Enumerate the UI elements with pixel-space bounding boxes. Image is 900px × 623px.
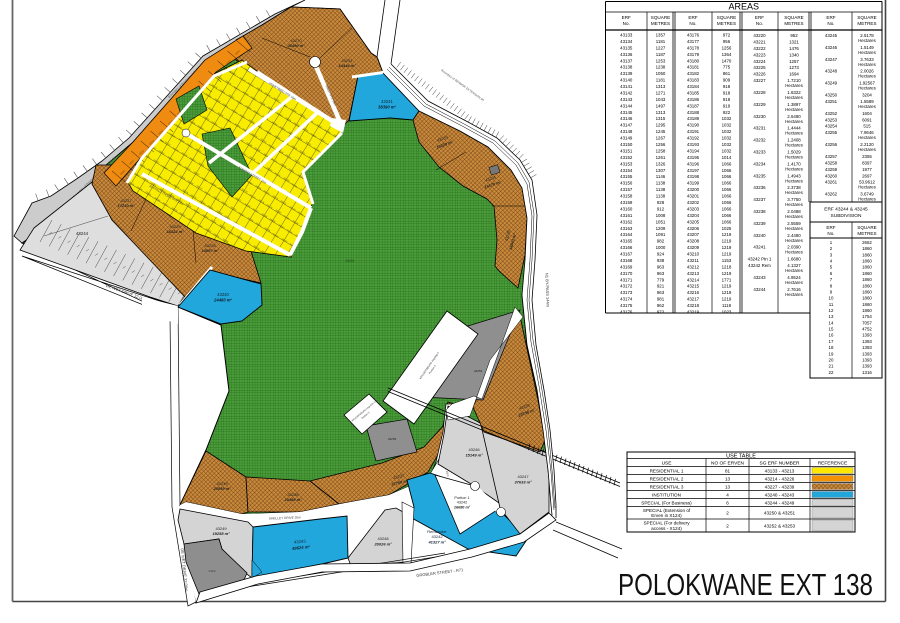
svg-text:SQUARE: SQUARE xyxy=(857,15,876,20)
svg-text:16322 m²: 16322 m² xyxy=(166,229,184,234)
svg-text:1257: 1257 xyxy=(789,59,799,64)
svg-text:1066: 1066 xyxy=(722,200,732,205)
svg-text:1066: 1066 xyxy=(722,213,732,218)
svg-text:43153: 43153 xyxy=(620,161,633,166)
svg-text:43166: 43166 xyxy=(620,245,633,250)
svg-text:43182: 43182 xyxy=(687,71,700,76)
svg-text:1066: 1066 xyxy=(722,206,732,211)
svg-text:1754: 1754 xyxy=(862,314,872,319)
svg-text:43240: 43240 xyxy=(217,292,229,297)
svg-text:Hectares: Hectares xyxy=(858,147,876,152)
svg-text:43239: 43239 xyxy=(753,221,766,226)
svg-text:43211: 43211 xyxy=(687,258,699,263)
svg-text:Hectares: Hectares xyxy=(785,250,803,255)
svg-text:43193: 43193 xyxy=(687,142,700,147)
svg-text:1066: 1066 xyxy=(722,187,732,192)
svg-text:43133: 43133 xyxy=(620,33,633,38)
svg-text:Hectares: Hectares xyxy=(858,86,876,91)
svg-text:N1 BY-PASS 144m: N1 BY-PASS 144m xyxy=(544,273,550,308)
svg-text:1261: 1261 xyxy=(656,155,666,160)
svg-text:43174: 43174 xyxy=(149,71,156,76)
svg-text:43139: 43139 xyxy=(176,26,183,31)
svg-text:43163: 43163 xyxy=(620,226,633,231)
svg-text:918: 918 xyxy=(723,97,731,102)
svg-text:REFERENCE: REFERENCE xyxy=(818,461,848,467)
svg-text:43228: 43228 xyxy=(753,90,766,95)
svg-text:43196: 43196 xyxy=(687,161,700,166)
svg-text:43203: 43203 xyxy=(687,206,700,211)
svg-text:1.6680: 1.6680 xyxy=(787,257,801,262)
svg-text:43240: 43240 xyxy=(753,233,766,238)
svg-text:1219: 1219 xyxy=(722,245,732,250)
svg-text:1860: 1860 xyxy=(862,265,872,270)
svg-text:43260: 43260 xyxy=(825,173,838,178)
svg-text:972: 972 xyxy=(723,33,731,38)
svg-text:43244: 43244 xyxy=(76,231,89,236)
svg-text:1219: 1219 xyxy=(722,252,732,257)
svg-text:43192: 43192 xyxy=(687,136,700,141)
svg-text:1771: 1771 xyxy=(722,277,732,282)
svg-text:1227: 1227 xyxy=(656,45,666,50)
svg-text:43226: 43226 xyxy=(753,72,766,77)
svg-text:19: 19 xyxy=(829,351,834,356)
svg-text:43233: 43233 xyxy=(753,150,766,155)
svg-text:20: 20 xyxy=(829,358,834,363)
svg-text:963: 963 xyxy=(657,271,665,276)
svg-text:43198: 43198 xyxy=(141,103,148,108)
svg-text:963: 963 xyxy=(657,264,665,269)
svg-text:43209: 43209 xyxy=(121,115,128,120)
svg-text:43138: 43138 xyxy=(620,65,633,70)
svg-text:43154: 43154 xyxy=(620,168,633,173)
svg-text:43141: 43141 xyxy=(207,33,214,38)
svg-text:43169: 43169 xyxy=(620,264,633,269)
svg-text:1860: 1860 xyxy=(862,308,872,313)
svg-text:43237: 43237 xyxy=(753,197,766,202)
svg-text:43220: 43220 xyxy=(753,33,766,38)
svg-text:43212: 43212 xyxy=(687,264,700,269)
svg-text:43141: 43141 xyxy=(620,84,633,89)
svg-text:43152: 43152 xyxy=(188,45,195,50)
svg-text:43242 Rem: 43242 Rem xyxy=(748,263,771,268)
svg-text:2697: 2697 xyxy=(862,173,872,178)
svg-text:43184: 43184 xyxy=(687,84,700,89)
svg-text:43242: 43242 xyxy=(431,534,443,539)
svg-text:43181: 43181 xyxy=(687,65,700,70)
svg-text:43176: 43176 xyxy=(620,310,633,315)
svg-text:918: 918 xyxy=(723,84,731,89)
svg-text:43177: 43177 xyxy=(687,39,700,44)
svg-text:43149: 43149 xyxy=(105,142,112,147)
svg-text:METRES: METRES xyxy=(857,231,876,236)
svg-text:SUBDIVISION: SUBDIVISION xyxy=(831,213,862,219)
svg-text:43241: 43241 xyxy=(381,99,393,104)
svg-text:43218: 43218 xyxy=(687,303,700,308)
svg-text:43173: 43173 xyxy=(171,72,178,77)
svg-text:43252 & 43253: 43252 & 43253 xyxy=(764,523,796,528)
svg-text:1273: 1273 xyxy=(789,65,799,70)
svg-text:ERF: ERF xyxy=(755,15,764,20)
svg-text:4: 4 xyxy=(726,492,729,497)
svg-text:43164: 43164 xyxy=(620,232,633,237)
svg-text:43250 & 43251: 43250 & 43251 xyxy=(764,511,796,516)
svg-text:1271: 1271 xyxy=(656,91,666,96)
svg-text:ERF: ERF xyxy=(826,15,835,20)
svg-text:43244: 43244 xyxy=(753,287,766,292)
svg-text:43156: 43156 xyxy=(620,181,633,186)
svg-text:43213: 43213 xyxy=(182,17,189,22)
svg-text:1032: 1032 xyxy=(722,123,732,128)
svg-text:1315: 1315 xyxy=(656,116,666,121)
svg-text:43224: 43224 xyxy=(753,59,766,64)
svg-text:43173: 43173 xyxy=(620,290,633,295)
svg-text:Hectares: Hectares xyxy=(785,107,803,112)
svg-text:43248: 43248 xyxy=(825,69,838,74)
svg-text:Hectares: Hectares xyxy=(785,155,803,160)
svg-text:RESIDENTIAL 2: RESIDENTIAL 2 xyxy=(650,476,684,481)
svg-text:1860: 1860 xyxy=(862,259,872,264)
svg-text:1977: 1977 xyxy=(862,167,872,172)
svg-text:43246: 43246 xyxy=(468,447,480,452)
svg-text:1219: 1219 xyxy=(722,239,732,244)
svg-text:1860: 1860 xyxy=(862,271,872,276)
svg-text:1340: 1340 xyxy=(789,52,799,57)
svg-text:43161: 43161 xyxy=(620,213,633,218)
svg-text:861: 861 xyxy=(723,71,731,76)
svg-text:1138: 1138 xyxy=(656,187,666,192)
svg-text:1326: 1326 xyxy=(656,161,666,166)
svg-text:43155: 43155 xyxy=(196,50,203,55)
svg-text:No.: No. xyxy=(623,21,630,26)
svg-text:919: 919 xyxy=(723,103,731,108)
svg-text:43198: 43198 xyxy=(687,174,700,179)
svg-text:1219: 1219 xyxy=(722,284,732,289)
svg-text:22: 22 xyxy=(829,370,834,375)
svg-text:ERF: ERF xyxy=(622,15,631,20)
svg-text:1219: 1219 xyxy=(722,232,732,237)
svg-text:1218: 1218 xyxy=(722,264,732,269)
svg-text:912: 912 xyxy=(657,206,665,211)
svg-text:43148: 43148 xyxy=(202,41,209,46)
svg-text:2: 2 xyxy=(726,523,729,528)
svg-text:1219: 1219 xyxy=(722,297,732,302)
svg-text:24480 m²: 24480 m² xyxy=(213,298,233,303)
svg-text:43144: 43144 xyxy=(620,103,633,108)
svg-text:43135: 43135 xyxy=(116,124,123,129)
svg-text:Portion 1: Portion 1 xyxy=(454,496,469,500)
svg-text:963: 963 xyxy=(657,290,665,295)
svg-text:43252: 43252 xyxy=(825,111,838,116)
svg-text:1032: 1032 xyxy=(722,136,732,141)
svg-text:1497: 1497 xyxy=(656,103,666,108)
svg-text:12: 12 xyxy=(829,308,834,313)
svg-text:43191: 43191 xyxy=(146,94,153,99)
svg-text:14444 m²: 14444 m² xyxy=(338,63,356,68)
svg-text:No.: No. xyxy=(827,21,834,26)
svg-text:43165: 43165 xyxy=(620,239,633,244)
svg-text:METRES: METRES xyxy=(784,21,803,26)
svg-text:ERF 43244 & 43245: ERF 43244 & 43245 xyxy=(824,207,868,213)
svg-text:1066: 1066 xyxy=(722,219,732,224)
svg-text:1364: 1364 xyxy=(722,52,732,57)
svg-text:515: 515 xyxy=(863,124,871,129)
svg-text:43200: 43200 xyxy=(687,187,700,192)
svg-text:1694: 1694 xyxy=(789,72,799,77)
svg-text:13897 m²: 13897 m² xyxy=(201,248,219,253)
svg-text:43195: 43195 xyxy=(132,97,139,102)
svg-text:No.: No. xyxy=(689,21,696,26)
svg-text:43139: 43139 xyxy=(620,71,633,76)
svg-text:Hectares: Hectares xyxy=(858,197,876,202)
svg-text:921: 921 xyxy=(657,284,665,289)
svg-text:1313: 1313 xyxy=(656,84,666,89)
svg-text:1000: 1000 xyxy=(656,245,666,250)
svg-text:Boundary of BENDOR EXTENSION 9: Boundary of BENDOR EXTENSION 94 xyxy=(440,68,485,102)
svg-text:43160: 43160 xyxy=(160,53,167,58)
svg-text:928: 928 xyxy=(657,200,665,205)
svg-text:20488 m²: 20488 m² xyxy=(283,497,302,502)
svg-text:1253: 1253 xyxy=(656,58,666,63)
svg-text:1860: 1860 xyxy=(862,290,872,295)
svg-text:SPECIAL (For Business): SPECIAL (For Business) xyxy=(641,500,692,505)
svg-text:Hectares: Hectares xyxy=(785,214,803,219)
svg-text:43238: 43238 xyxy=(753,209,766,214)
svg-text:43183: 43183 xyxy=(687,78,700,83)
svg-text:1014: 1014 xyxy=(722,155,732,160)
svg-text:43249: 43249 xyxy=(825,81,838,86)
svg-text:43184: 43184 xyxy=(152,85,159,90)
svg-text:43197: 43197 xyxy=(687,168,700,173)
svg-text:43190: 43190 xyxy=(687,123,700,128)
svg-text:14: 14 xyxy=(829,320,834,325)
svg-text:43216: 43216 xyxy=(687,290,700,295)
svg-text:43142: 43142 xyxy=(620,91,633,96)
svg-text:1245: 1245 xyxy=(656,129,666,134)
svg-text:43227: 43227 xyxy=(753,78,766,83)
svg-text:2: 2 xyxy=(726,511,729,516)
svg-text:43256: 43256 xyxy=(825,142,838,147)
svg-text:1307: 1307 xyxy=(656,168,666,173)
svg-text:1209: 1209 xyxy=(656,226,666,231)
svg-text:43227 - 43239: 43227 - 43239 xyxy=(765,484,795,489)
svg-text:43156: 43156 xyxy=(174,49,181,54)
svg-text:43145: 43145 xyxy=(193,36,200,41)
svg-text:43254: 43254 xyxy=(825,124,838,129)
svg-text:1860: 1860 xyxy=(862,302,872,307)
svg-text:No.: No. xyxy=(827,231,834,236)
svg-text:43168: 43168 xyxy=(620,258,633,263)
svg-text:13: 13 xyxy=(725,484,731,489)
svg-text:43187: 43187 xyxy=(687,103,700,108)
svg-text:SQUARE: SQUARE xyxy=(784,15,803,20)
svg-text:43145: 43145 xyxy=(620,110,633,115)
svg-text:938: 938 xyxy=(657,258,665,263)
svg-text:43210: 43210 xyxy=(687,252,700,257)
svg-text:43261: 43261 xyxy=(345,259,355,263)
svg-text:1066: 1066 xyxy=(722,194,732,199)
svg-text:1181: 1181 xyxy=(656,78,666,83)
svg-text:43212: 43212 xyxy=(130,121,137,126)
svg-text:15: 15 xyxy=(829,327,834,332)
svg-text:38390 m²: 38390 m² xyxy=(378,105,397,110)
svg-text:1860: 1860 xyxy=(862,296,872,301)
svg-text:18: 18 xyxy=(829,345,834,350)
svg-text:43148: 43148 xyxy=(620,129,633,134)
svg-text:1066: 1066 xyxy=(722,181,732,186)
svg-text:Hectares: Hectares xyxy=(785,119,803,124)
svg-text:Hectares: Hectares xyxy=(785,131,803,136)
svg-text:43171: 43171 xyxy=(620,277,633,282)
svg-text:43261: 43261 xyxy=(825,180,838,185)
svg-text:26490 m²: 26490 m² xyxy=(286,43,305,48)
svg-text:43253: 43253 xyxy=(825,117,838,122)
svg-text:43231: 43231 xyxy=(753,126,766,131)
svg-text:956: 956 xyxy=(723,39,731,44)
svg-text:43240 - 43243: 43240 - 43243 xyxy=(765,492,795,497)
svg-text:Hectares: Hectares xyxy=(858,135,876,140)
svg-text:1393: 1393 xyxy=(862,339,872,344)
svg-text:1032: 1032 xyxy=(722,116,732,121)
svg-text:13: 13 xyxy=(829,314,834,319)
svg-text:981: 981 xyxy=(657,297,665,302)
svg-text:1357: 1357 xyxy=(656,33,666,38)
svg-text:43160: 43160 xyxy=(620,206,633,211)
svg-text:43215: 43215 xyxy=(687,284,700,289)
svg-text:POLOKWANE EXT 138: POLOKWANE EXT 138 xyxy=(618,568,873,602)
svg-text:Hectares: Hectares xyxy=(785,95,803,100)
svg-text:Hectares: Hectares xyxy=(785,83,803,88)
svg-text:43194: 43194 xyxy=(687,149,700,154)
svg-text:43248: 43248 xyxy=(377,536,389,541)
svg-text:1025: 1025 xyxy=(722,226,732,231)
svg-text:43189: 43189 xyxy=(687,116,700,121)
svg-text:43146: 43146 xyxy=(171,35,178,40)
svg-text:43187: 43187 xyxy=(160,90,167,95)
svg-text:37633 m²: 37633 m² xyxy=(514,480,532,485)
svg-text:7057: 7057 xyxy=(862,320,872,325)
svg-text:1238: 1238 xyxy=(656,65,666,70)
svg-text:1295: 1295 xyxy=(656,123,666,128)
svg-text:43247: 43247 xyxy=(825,57,838,62)
svg-text:GROBLER STREET - R71: GROBLER STREET - R71 xyxy=(416,567,464,578)
svg-text:43243: 43243 xyxy=(753,275,766,280)
svg-text:1393: 1393 xyxy=(862,351,872,356)
svg-text:1476: 1476 xyxy=(789,46,799,51)
svg-text:X124: X124 xyxy=(208,569,215,573)
svg-text:918: 918 xyxy=(723,91,731,96)
svg-text:43217: 43217 xyxy=(687,297,700,302)
svg-text:972: 972 xyxy=(657,310,665,315)
svg-text:43188: 43188 xyxy=(687,110,700,115)
svg-text:43259: 43259 xyxy=(388,437,397,441)
svg-text:1032: 1032 xyxy=(722,142,732,147)
svg-text:43170: 43170 xyxy=(163,67,170,72)
svg-text:43176: 43176 xyxy=(687,33,700,38)
svg-text:43135: 43135 xyxy=(190,22,197,27)
svg-text:43251: 43251 xyxy=(825,99,838,104)
svg-text:10: 10 xyxy=(829,296,834,301)
svg-text:1138: 1138 xyxy=(656,181,666,186)
svg-text:81: 81 xyxy=(725,468,731,473)
svg-text:Hectares: Hectares xyxy=(858,38,876,43)
svg-text:43247: 43247 xyxy=(517,474,529,479)
svg-text:43232: 43232 xyxy=(753,138,766,143)
svg-text:43225: 43225 xyxy=(753,65,766,70)
svg-text:6091: 6091 xyxy=(862,117,872,122)
svg-text:4752: 4752 xyxy=(862,327,872,332)
svg-text:962: 962 xyxy=(657,303,665,308)
svg-text:43241: 43241 xyxy=(753,245,766,250)
svg-text:43151: 43151 xyxy=(620,149,633,154)
svg-text:1604: 1604 xyxy=(862,111,872,116)
svg-text:43167: 43167 xyxy=(154,62,161,67)
svg-text:43246: 43246 xyxy=(825,45,838,50)
svg-text:USE: USE xyxy=(662,461,672,467)
svg-text:8397: 8397 xyxy=(862,160,872,165)
svg-text:1256: 1256 xyxy=(656,142,666,147)
svg-text:43170: 43170 xyxy=(620,271,633,276)
svg-text:43209: 43209 xyxy=(687,245,700,250)
svg-text:922: 922 xyxy=(723,110,731,115)
svg-text:43230: 43230 xyxy=(753,114,766,119)
svg-text:SQUARE: SQUARE xyxy=(651,15,670,20)
svg-text:43140: 43140 xyxy=(620,78,633,83)
svg-text:16: 16 xyxy=(829,333,834,338)
svg-text:43202: 43202 xyxy=(127,106,134,111)
svg-text:43202: 43202 xyxy=(687,200,700,205)
svg-text:16680 m²: 16680 m² xyxy=(454,506,471,510)
svg-text:43172: 43172 xyxy=(620,284,633,289)
svg-text:43250: 43250 xyxy=(825,93,838,98)
svg-text:1066: 1066 xyxy=(722,168,732,173)
svg-text:SQUARE: SQUARE xyxy=(857,225,876,230)
svg-text:43221: 43221 xyxy=(753,39,766,44)
svg-text:1316: 1316 xyxy=(862,370,872,375)
svg-text:SG ERF NUMBER: SG ERF NUMBER xyxy=(760,461,801,467)
svg-text:43191: 43191 xyxy=(687,129,700,134)
svg-text:43213: 43213 xyxy=(687,271,700,276)
svg-text:43207: 43207 xyxy=(687,232,700,237)
svg-text:1118: 1118 xyxy=(722,303,732,308)
svg-text:43157: 43157 xyxy=(620,187,633,192)
svg-text:43222: 43222 xyxy=(753,46,766,51)
svg-text:RESIDENTIAL 1: RESIDENTIAL 1 xyxy=(650,468,684,473)
svg-text:909: 909 xyxy=(723,78,731,83)
svg-text:43262: 43262 xyxy=(825,192,838,197)
svg-text:METRES: METRES xyxy=(857,21,876,26)
svg-text:Hectares: Hectares xyxy=(858,50,876,55)
svg-text:Hectares: Hectares xyxy=(785,202,803,207)
svg-text:43178: 43178 xyxy=(687,45,700,50)
svg-text:43149: 43149 xyxy=(179,40,186,45)
svg-text:43135: 43135 xyxy=(620,45,633,50)
svg-text:43136: 43136 xyxy=(620,52,633,57)
svg-text:43235: 43235 xyxy=(753,173,766,178)
svg-text:2662: 2662 xyxy=(862,240,872,245)
svg-text:1138: 1138 xyxy=(656,194,666,199)
svg-text:43159: 43159 xyxy=(620,200,633,205)
svg-text:1393: 1393 xyxy=(862,364,872,369)
svg-text:No.: No. xyxy=(756,21,763,26)
svg-text:Hectares: Hectares xyxy=(785,143,803,148)
svg-text:1219: 1219 xyxy=(722,290,732,295)
svg-text:952: 952 xyxy=(790,33,798,38)
svg-text:43206: 43206 xyxy=(687,226,700,231)
svg-text:43257: 43257 xyxy=(825,154,838,159)
svg-text:43205: 43205 xyxy=(687,219,700,224)
svg-text:SPECIAL (Extension of: SPECIAL (Extension of xyxy=(643,508,691,513)
svg-text:43175: 43175 xyxy=(620,303,633,308)
